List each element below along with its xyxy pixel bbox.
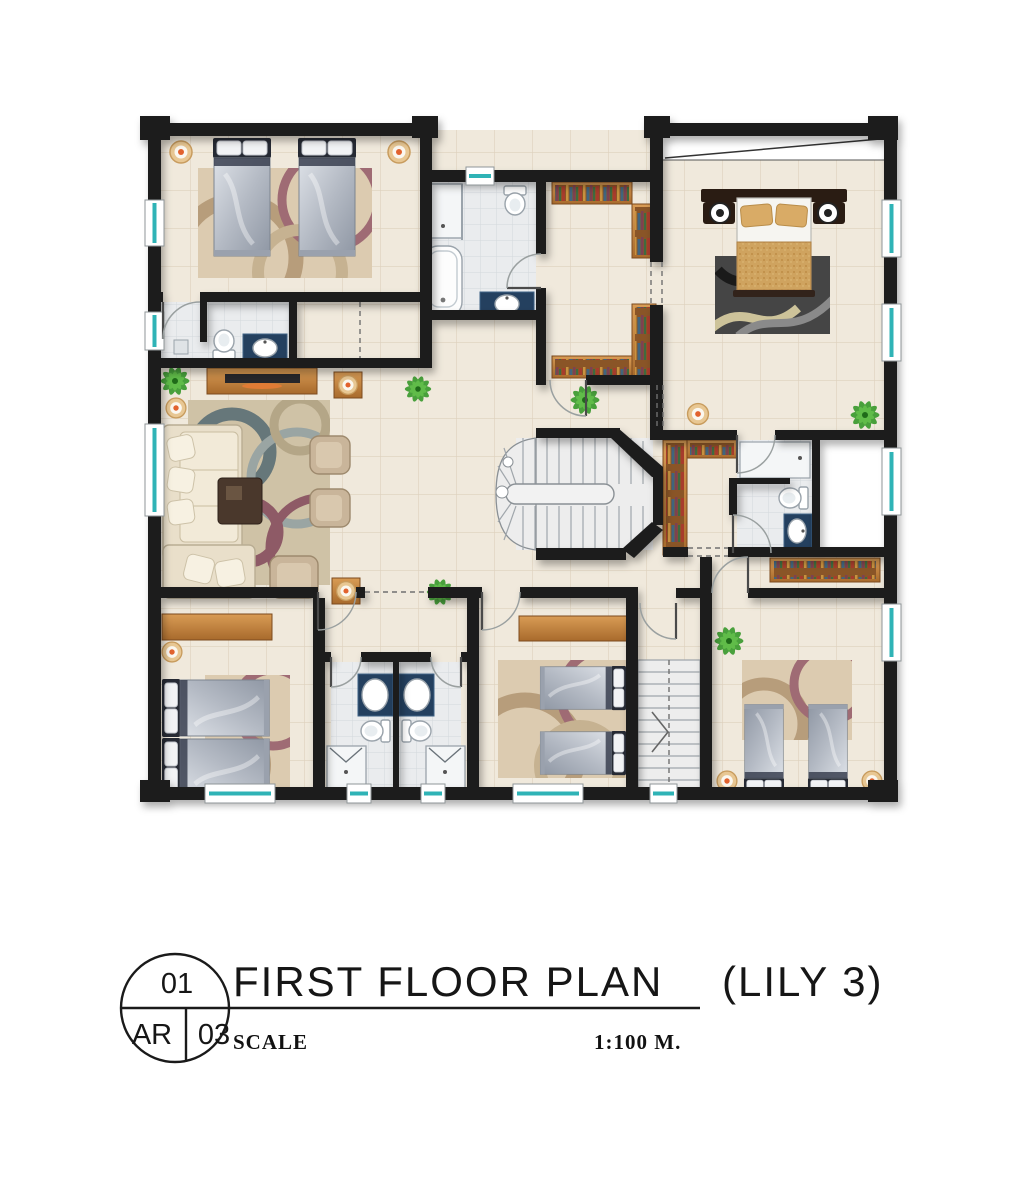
toilet	[361, 720, 390, 742]
floor-lamp	[388, 141, 410, 163]
void-shaft	[820, 440, 884, 547]
window	[145, 312, 164, 350]
shower	[426, 746, 465, 788]
toilet	[402, 720, 431, 742]
twin-bed	[540, 731, 626, 775]
window	[513, 784, 583, 803]
twin-bed	[162, 679, 269, 737]
floor-lamp	[170, 141, 192, 163]
drawing-variant: (LILY 3)	[722, 958, 884, 1005]
floor-plan-drawing: 01 AR 03 FIRST FLOOR PLAN (LILY 3) SCALE…	[0, 0, 1014, 1200]
newel-post	[496, 486, 508, 498]
utility-fixture	[174, 340, 188, 354]
title-block: 01 AR 03 FIRST FLOOR PLAN (LILY 3) SCALE…	[121, 954, 884, 1062]
sheet-total: 03	[198, 1019, 230, 1051]
shelf-desk	[162, 614, 272, 640]
floor-lamp	[166, 398, 186, 418]
shower	[327, 746, 366, 788]
armchair	[310, 436, 350, 474]
coffee-table	[218, 478, 262, 524]
corridor-bookshelf	[770, 558, 880, 582]
secondary-staircase	[638, 660, 700, 788]
table-lamp	[337, 582, 356, 601]
window	[882, 304, 901, 361]
pillow	[775, 204, 808, 228]
window	[421, 784, 445, 803]
window	[205, 784, 275, 803]
window	[882, 604, 901, 661]
window	[145, 424, 164, 516]
table-lamp	[339, 376, 358, 395]
sheet-number: 01	[161, 968, 193, 1000]
floor-plan-sheet: 01 AR 03 FIRST FLOOR PLAN (LILY 3) SCALE…	[0, 0, 1014, 1200]
scale-value: 1:100 M.	[594, 1030, 681, 1054]
window	[347, 784, 371, 803]
footboard	[733, 290, 815, 297]
shelf-desk	[519, 616, 631, 641]
floor-lamp	[162, 642, 182, 662]
tv-stand-accent	[242, 383, 282, 389]
toilet	[779, 487, 808, 509]
coffee-table-tray	[226, 486, 242, 500]
twin-bed	[744, 705, 784, 794]
window	[882, 448, 901, 515]
sink	[362, 679, 388, 711]
window	[145, 200, 164, 246]
floor-lamp	[688, 404, 709, 425]
window	[650, 784, 677, 803]
stair-center-rail	[506, 484, 614, 504]
pillow	[740, 204, 773, 228]
newel-post	[503, 457, 513, 467]
sink	[253, 339, 277, 357]
toilet	[504, 186, 526, 215]
sink	[404, 679, 430, 711]
scale-label: SCALE	[233, 1030, 308, 1054]
tv-console	[207, 368, 317, 394]
window	[882, 200, 901, 257]
twin-bed	[298, 138, 356, 256]
twin-bed	[808, 705, 848, 794]
sink	[788, 519, 806, 543]
window	[466, 167, 494, 185]
drawing-title: FIRST FLOOR PLAN	[233, 958, 663, 1005]
armchair	[310, 489, 350, 527]
shower	[740, 442, 810, 478]
twin-bed	[540, 666, 626, 710]
toilet	[213, 330, 235, 359]
twin-bed	[213, 138, 271, 256]
discipline-code: AR	[132, 1019, 172, 1051]
